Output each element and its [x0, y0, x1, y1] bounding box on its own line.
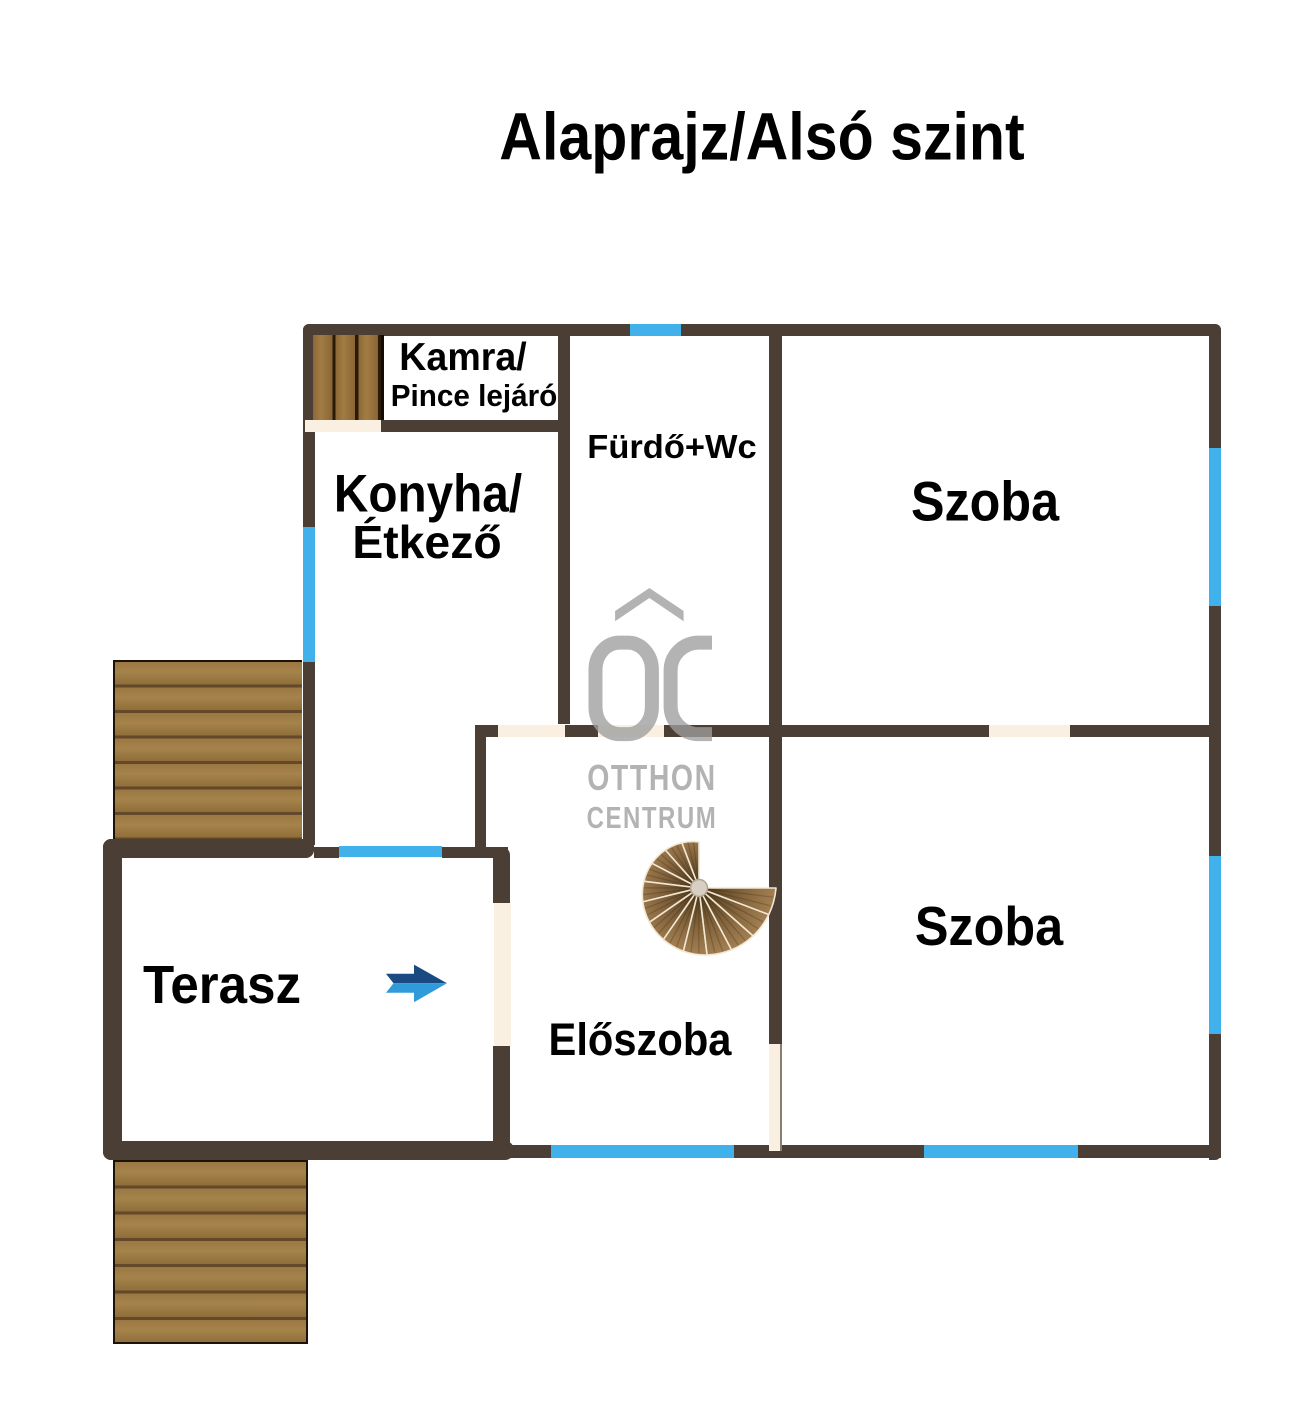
- svg-text:OTTHON: OTTHON: [587, 758, 717, 798]
